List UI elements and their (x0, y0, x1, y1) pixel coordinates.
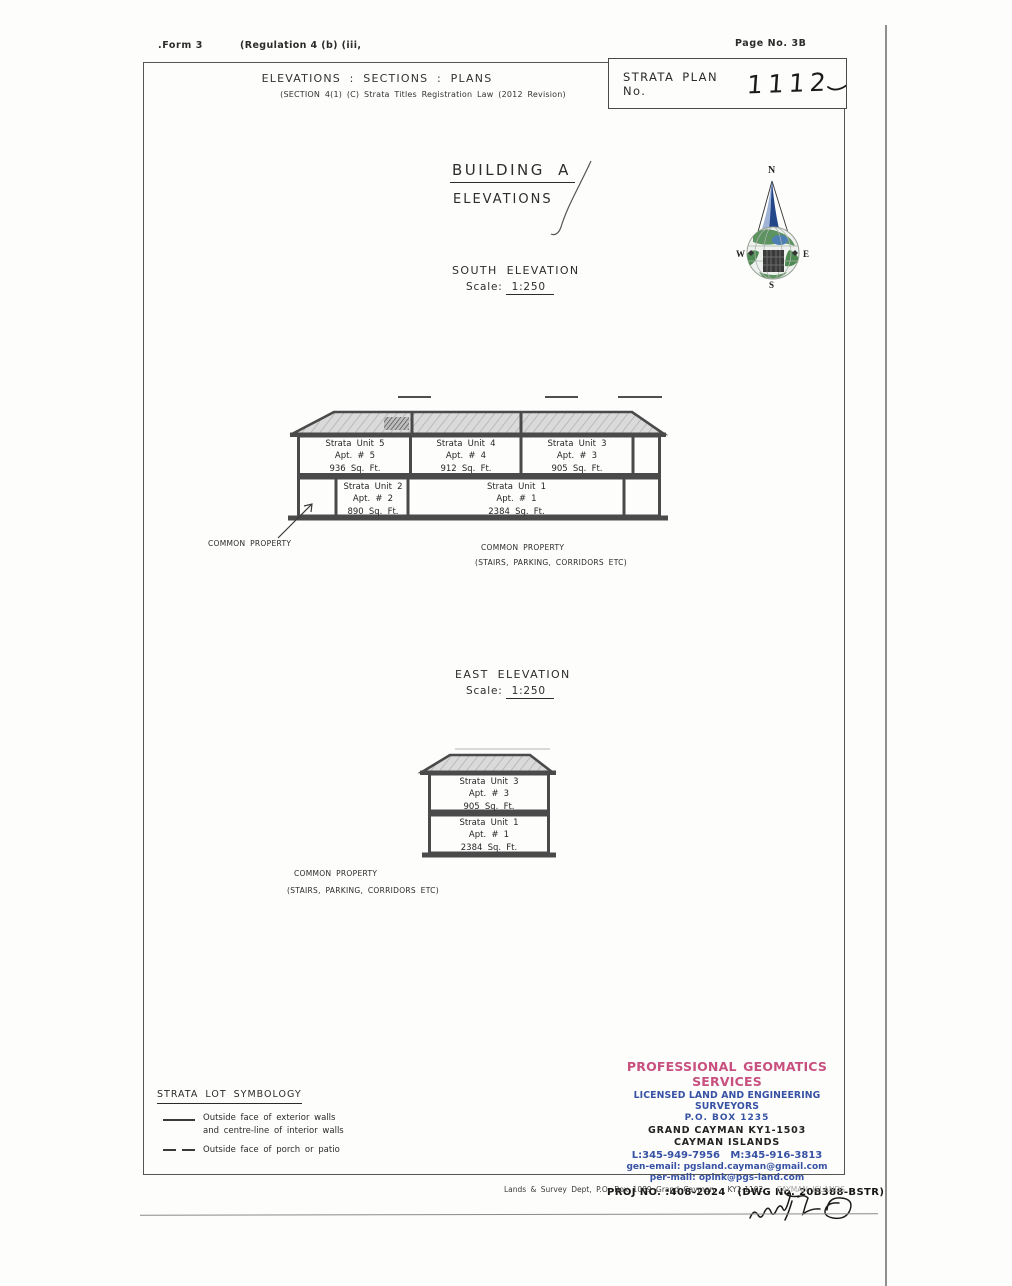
symbology-item-2: Outside face of porch or patio (203, 1144, 340, 1157)
unit-name: Strata Unit 1 (431, 817, 547, 829)
regulation-label: (Regulation 4 (b) (iii, (240, 40, 361, 51)
unit-name: Strata Unit 2 (338, 481, 408, 493)
dashed-line-symbol (182, 1149, 195, 1151)
dashed-line-symbol (163, 1149, 176, 1151)
strata-plan-number-box: STRATA PLAN No. 1112 (608, 58, 847, 109)
unit-apt: Apt. # 5 (301, 450, 409, 462)
scale-label: Scale: (466, 281, 503, 293)
compass-west-label: W (736, 249, 745, 259)
unit-label-2: Strata Unit 2 Apt. # 2 890 Sq. Ft. (338, 481, 408, 518)
unit-label-3-east: Strata Unit 3 Apt. # 3 905 Sq. Ft. (431, 776, 547, 813)
form-number-label: .Form 3 (158, 40, 203, 51)
signature-scribble (745, 1186, 863, 1230)
surveyor-country: CAYMAN ISLANDS (607, 1137, 847, 1148)
common-property-detail: (STAIRS, PARKING, CORRIDORS ETC) (475, 558, 627, 567)
unit-area: 2384 Sq. Ft. (431, 842, 547, 854)
scale-label: Scale: (466, 685, 503, 697)
common-property-detail-east: (STAIRS, PARKING, CORRIDORS ETC) (287, 886, 439, 895)
strata-plan-label: STRATA PLAN No. (623, 70, 735, 98)
unit-name: Strata Unit 3 (522, 438, 632, 450)
surveyor-city: GRAND CAYMAN KY1-1503 (607, 1125, 847, 1136)
symbology-item-1: Outside face of exterior walls and centr… (203, 1112, 344, 1138)
scan-edge-line (885, 25, 887, 1286)
leader-curve (545, 155, 605, 245)
page-number: Page No. 3B (735, 38, 807, 49)
unit-apt: Apt. # 1 (431, 829, 547, 841)
unit-apt: Apt. # 3 (431, 788, 547, 800)
unit-area: 936 Sq. Ft. (301, 463, 409, 475)
east-elevation-scale: Scale:1:250 (466, 685, 554, 697)
surveyor-phones: L:345-949-7956 M:345-916-3813 (607, 1150, 847, 1161)
symbology-text: Outside face of porch or patio (203, 1144, 340, 1157)
north-arrow-compass: N W E S (733, 158, 813, 290)
surveyor-po-box: P.O. BOX 1235 (607, 1113, 847, 1123)
unit-area: 2384 Sq. Ft. (409, 506, 624, 518)
unit-apt: Apt. # 4 (412, 450, 520, 462)
unit-name: Strata Unit 5 (301, 438, 409, 450)
unit-label-1-east: Strata Unit 1 Apt. # 1 2384 Sq. Ft. (431, 817, 547, 854)
symbology-text: Outside face of exterior walls (203, 1112, 344, 1125)
unit-name: Strata Unit 3 (431, 776, 547, 788)
roof-hatch (422, 755, 552, 772)
unit-area: 905 Sq. Ft. (522, 463, 632, 475)
south-elevation-title: SOUTH ELEVATION (452, 264, 580, 277)
roof-hatch (292, 412, 664, 434)
building-subtitle: ELEVATIONS (453, 192, 553, 207)
roof-dark-patch (384, 417, 409, 430)
compass-north-label: N (768, 165, 776, 176)
strata-plan-document: .Form 3 (Regulation 4 (b) (iii, Page No.… (0, 0, 1012, 1286)
unit-apt: Apt. # 2 (338, 493, 408, 505)
unit-apt: Apt. # 3 (522, 450, 632, 462)
east-elevation-drawing: Strata Unit 3 Apt. # 3 905 Sq. Ft. Strat… (410, 740, 570, 865)
scale-value: 1:250 (506, 685, 554, 699)
document-title: ELEVATIONS : SECTIONS : PLANS (143, 72, 611, 85)
surveyor-tagline: LICENSED LAND AND ENGINEERING SURVEYORS (607, 1090, 847, 1112)
surveyor-gen-email: gen-email: pgsland.cayman@gmail.com (607, 1162, 847, 1172)
symbology-title: STRATA LOT SYMBOLOGY (157, 1089, 302, 1104)
dept-text: Lands & Survey Dept, P.O. Box 1089 Grand… (504, 1185, 776, 1194)
unit-name: Strata Unit 1 (409, 481, 624, 493)
common-property-label-east: COMMON PROPERTY (294, 869, 377, 878)
common-property-label: COMMON PROPERTY (481, 543, 564, 552)
symbology-text: and centre-line of interior walls (203, 1125, 344, 1138)
surveyor-company-name: PROFESSIONAL GEOMATICS SERVICES (607, 1059, 847, 1089)
unit-area: 890 Sq. Ft. (338, 506, 408, 518)
strata-plan-number-handwritten: 1112 (746, 67, 832, 99)
unit-area: 912 Sq. Ft. (412, 463, 520, 475)
unit-label-4: Strata Unit 4 Apt. # 4 912 Sq. Ft. (412, 438, 520, 475)
solid-line-symbol (163, 1119, 195, 1121)
compass-east-label: E (803, 249, 809, 259)
compass-south-label: S (769, 280, 774, 290)
unit-label-5: Strata Unit 5 Apt. # 5 936 Sq. Ft. (301, 438, 409, 475)
unit-label-1: Strata Unit 1 Apt. # 1 2384 Sq. Ft. (409, 481, 624, 518)
unit-area: 905 Sq. Ft. (431, 801, 547, 813)
pointer-arrow-line (278, 504, 312, 538)
east-elevation-title: EAST ELEVATION (455, 668, 571, 681)
south-elevation-scale: Scale:1:250 (466, 281, 554, 293)
unit-apt: Apt. # 1 (409, 493, 624, 505)
south-elevation-drawing: Strata Unit 5 Apt. # 5 936 Sq. Ft. Strat… (200, 392, 680, 577)
unit-label-3: Strata Unit 3 Apt. # 3 905 Sq. Ft. (522, 438, 632, 475)
common-property-pointer-label: COMMON PROPERTY (208, 539, 291, 548)
scale-value: 1:250 (506, 281, 554, 295)
unit-name: Strata Unit 4 (412, 438, 520, 450)
